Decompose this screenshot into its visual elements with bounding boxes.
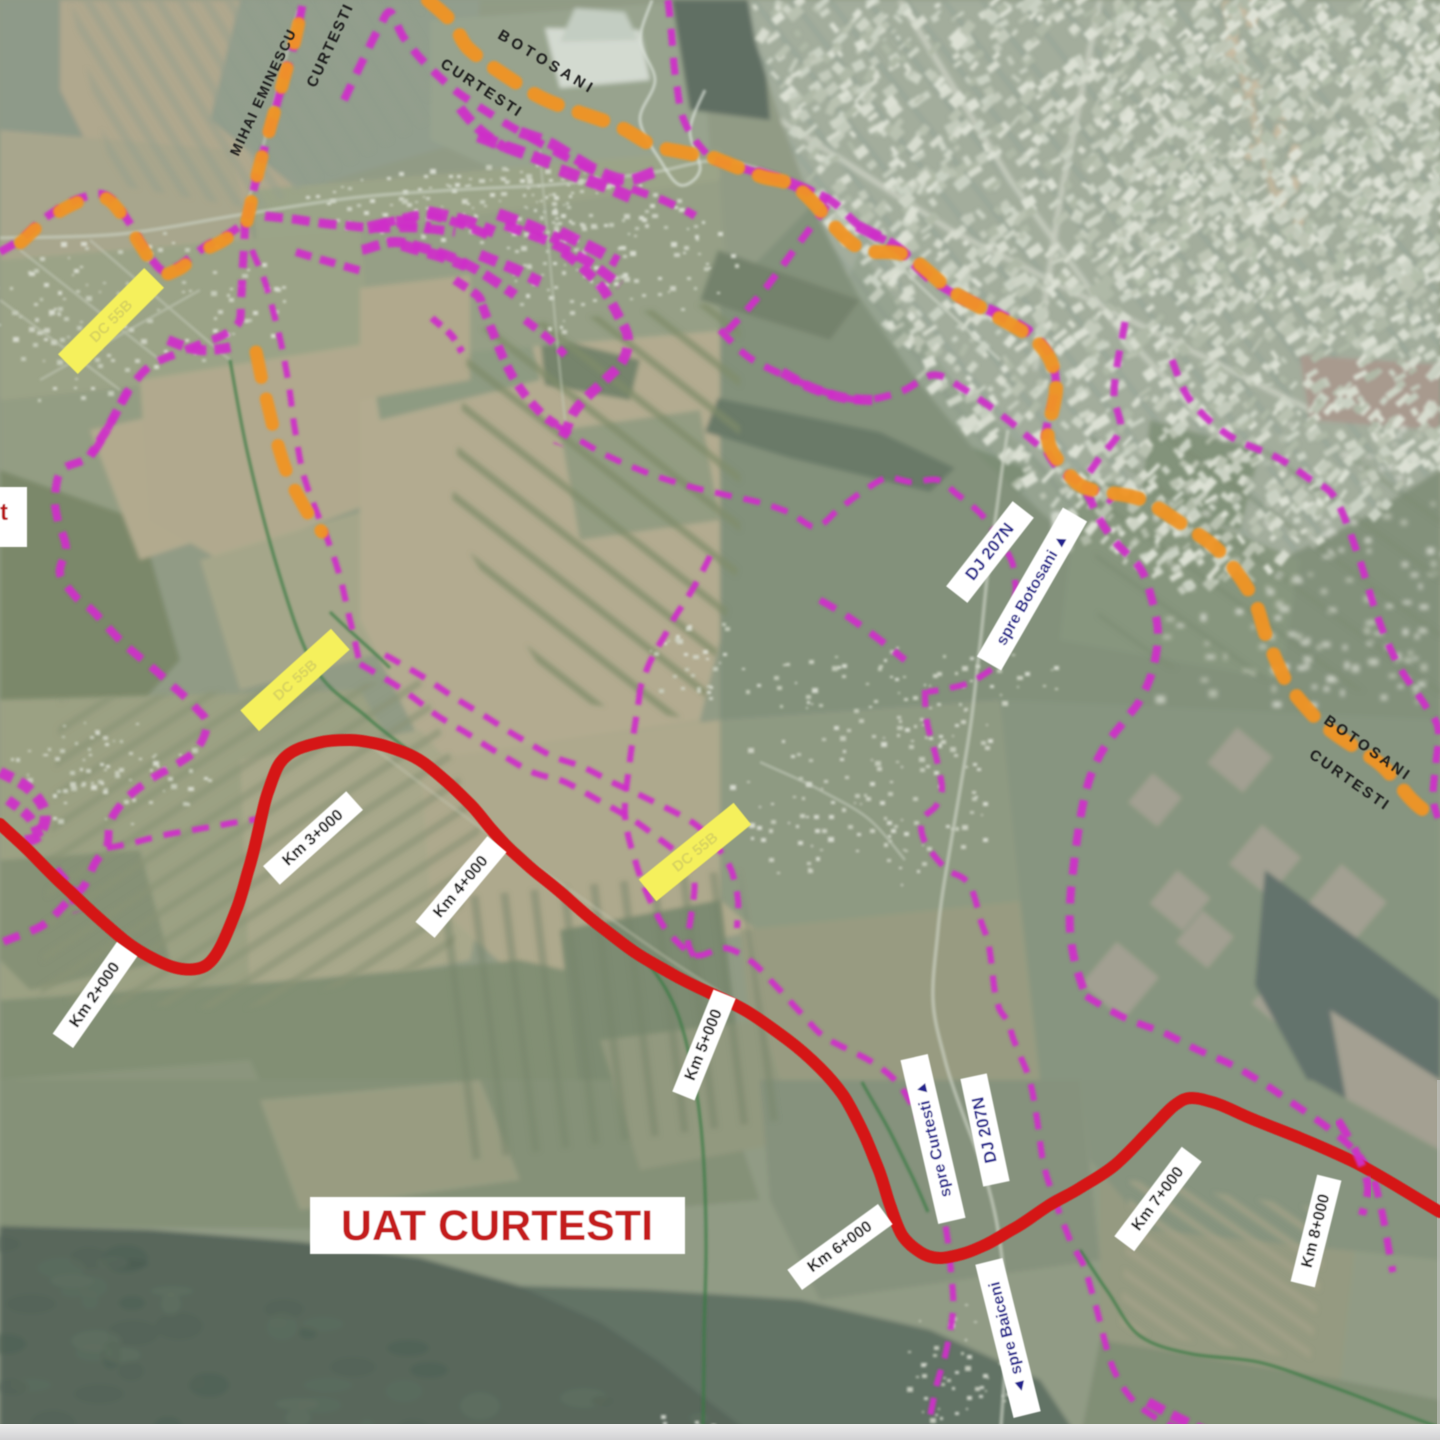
svg-text:t: t xyxy=(0,499,8,526)
svg-text:UAT CURTESTI: UAT CURTESTI xyxy=(341,1202,653,1250)
